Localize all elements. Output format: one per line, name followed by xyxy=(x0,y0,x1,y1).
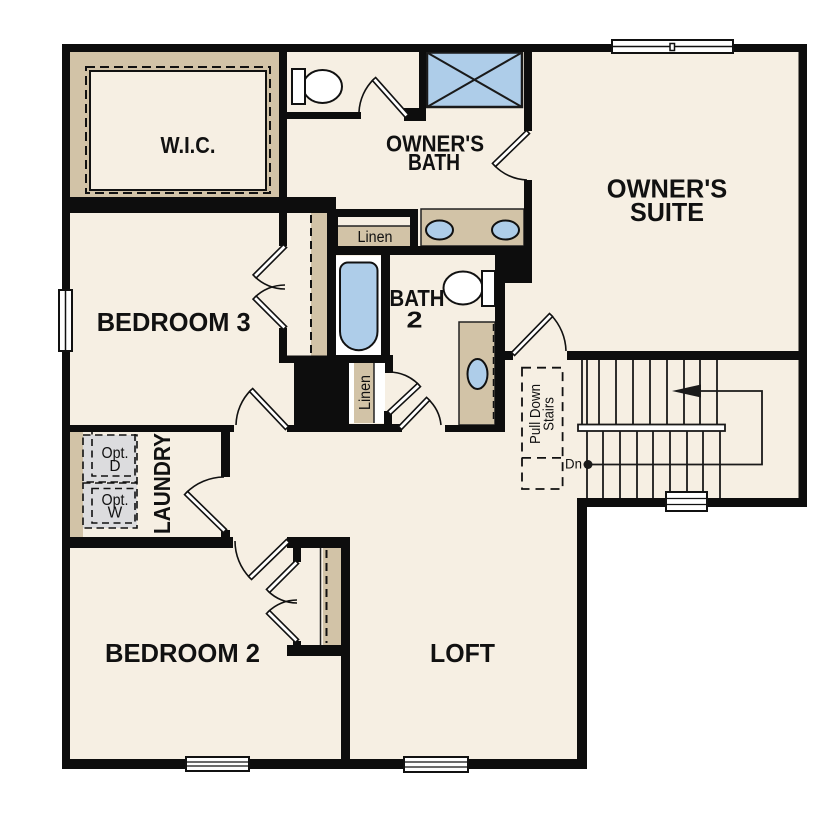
svg-text:BATH: BATH xyxy=(408,149,460,175)
svg-text:BEDROOM 2: BEDROOM 2 xyxy=(105,638,260,668)
svg-text:Linen: Linen xyxy=(357,375,374,410)
svg-text:BEDROOM 3: BEDROOM 3 xyxy=(97,307,251,337)
svg-text:SUITE: SUITE xyxy=(630,197,704,227)
svg-text:Linen: Linen xyxy=(358,229,393,246)
svg-text:W: W xyxy=(108,505,123,522)
svg-text:LOFT: LOFT xyxy=(430,638,495,668)
svg-text:LAUNDRY: LAUNDRY xyxy=(149,433,175,534)
svg-text:W.I.C.: W.I.C. xyxy=(161,132,216,158)
svg-text:Dn: Dn xyxy=(565,456,582,472)
svg-text:2: 2 xyxy=(407,306,423,332)
svg-text:D: D xyxy=(109,458,120,475)
